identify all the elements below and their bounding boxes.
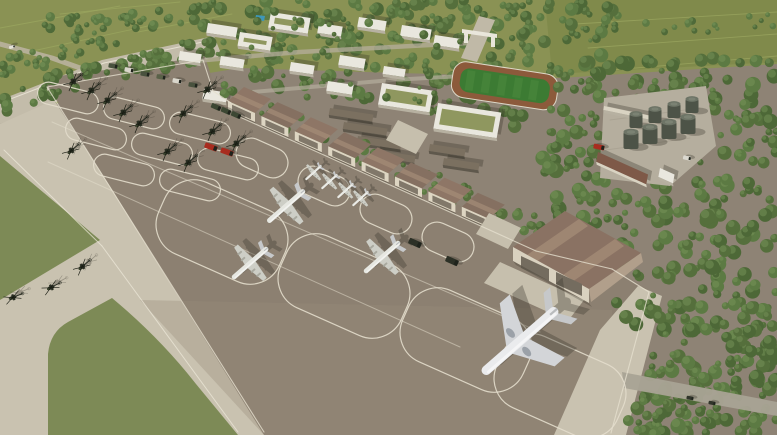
airbase-aerial-rendering: [0, 0, 777, 435]
scene-svg: [0, 0, 777, 435]
